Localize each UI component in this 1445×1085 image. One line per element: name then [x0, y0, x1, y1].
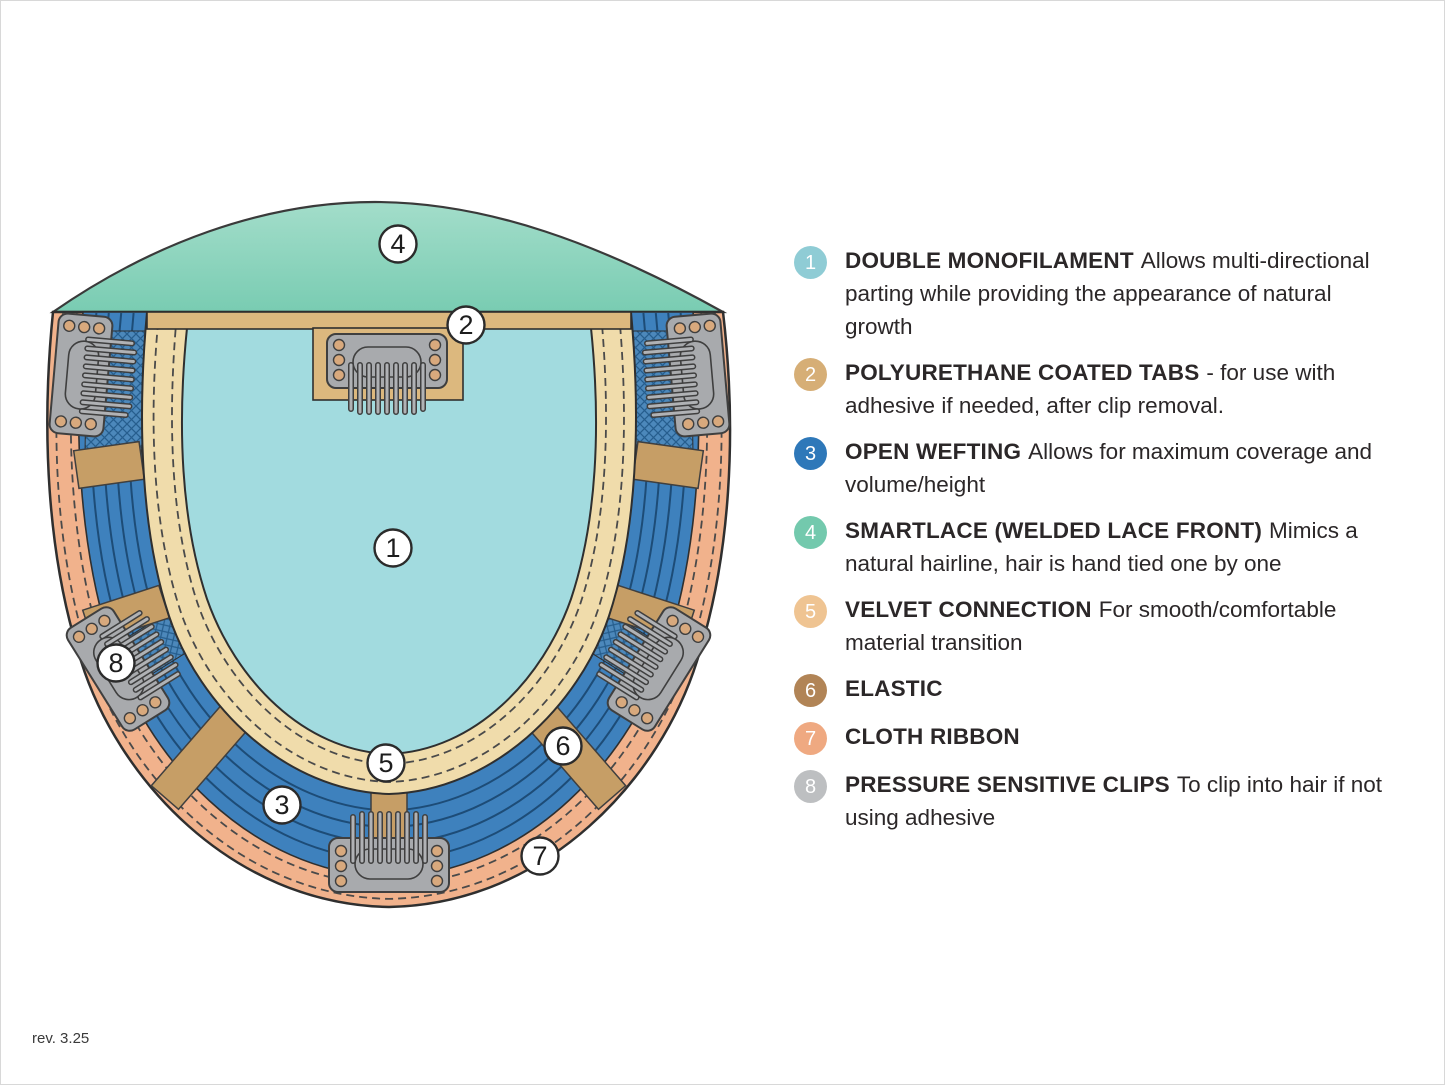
legend-number: 7 — [805, 729, 816, 749]
legend-number: 3 — [805, 444, 816, 464]
legend-term: ELASTIC — [845, 676, 943, 701]
legend-text: VELVET CONNECTIONFor smooth/comfortable … — [845, 593, 1390, 659]
callout-4: 4 — [380, 226, 417, 263]
legend-text: PRESSURE SENSITIVE CLIPSTo clip into hai… — [845, 768, 1390, 834]
legend-item-cloth-ribbon: 7 CLOTH RIBBON — [794, 720, 1394, 755]
callout-8: 8 — [98, 645, 135, 682]
legend-number: 2 — [805, 365, 816, 385]
legend-number-badge: 3 — [794, 437, 827, 470]
legend-text: SMARTLACE (WELDED LACE FRONT)Mimics a na… — [845, 514, 1390, 580]
callout-2: 2 — [448, 307, 485, 344]
legend-number-badge: 8 — [794, 770, 827, 803]
legend-number: 4 — [805, 523, 816, 543]
callout-5: 5 — [368, 745, 405, 782]
legend-item-polyurethane-tabs: 2 POLYURETHANE COATED TABS- for use with… — [794, 356, 1394, 422]
legend-item-smartlace: 4 SMARTLACE (WELDED LACE FRONT)Mimics a … — [794, 514, 1394, 580]
legend-text: OPEN WEFTINGAllows for maximum coverage … — [845, 435, 1390, 501]
tab-band-top — [147, 312, 631, 329]
legend-number: 8 — [805, 777, 816, 797]
legend-number: 5 — [805, 602, 816, 622]
callout-3-number: 3 — [274, 790, 289, 820]
legend-item-velvet-connection: 5 VELVET CONNECTIONFor smooth/comfortabl… — [794, 593, 1394, 659]
legend-item-pressure-clips: 8 PRESSURE SENSITIVE CLIPSTo clip into h… — [794, 768, 1394, 834]
callout-6-number: 6 — [555, 731, 570, 761]
legend-term: DOUBLE MONOFILAMENT — [845, 248, 1134, 273]
callout-1: 1 — [375, 530, 412, 567]
legend-term: VELVET CONNECTION — [845, 597, 1092, 622]
legend-term: PRESSURE SENSITIVE CLIPS — [845, 772, 1170, 797]
legend-number: 1 — [805, 253, 816, 273]
callout-4-number: 4 — [390, 229, 405, 259]
legend: 1 DOUBLE MONOFILAMENTAllows multi-direct… — [794, 244, 1394, 847]
legend-term: OPEN WEFTING — [845, 439, 1021, 464]
callout-5-number: 5 — [378, 748, 393, 778]
page: 1 2 3 4 5 6 7 8 — [0, 0, 1445, 1085]
legend-number-badge: 2 — [794, 358, 827, 391]
callout-1-number: 1 — [385, 533, 400, 563]
callout-3: 3 — [264, 787, 301, 824]
legend-text: DOUBLE MONOFILAMENTAllows multi-directio… — [845, 244, 1390, 343]
callout-7: 7 — [522, 838, 559, 875]
legend-number-badge: 5 — [794, 595, 827, 628]
legend-text: CLOTH RIBBON — [845, 720, 1027, 753]
legend-number-badge: 7 — [794, 722, 827, 755]
callout-6: 6 — [545, 728, 582, 765]
legend-item-elastic: 6 ELASTIC — [794, 672, 1394, 707]
legend-number-badge: 1 — [794, 246, 827, 279]
legend-text: ELASTIC — [845, 672, 950, 705]
callout-2-number: 2 — [458, 310, 473, 340]
legend-number-badge: 4 — [794, 516, 827, 549]
legend-term: CLOTH RIBBON — [845, 724, 1020, 749]
cap-construction-diagram: 1 2 3 4 5 6 7 8 — [1, 1, 761, 1085]
callout-7-number: 7 — [532, 841, 547, 871]
revision-label: rev. 3.25 — [32, 1030, 89, 1047]
legend-item-open-wefting: 3 OPEN WEFTINGAllows for maximum coverag… — [794, 435, 1394, 501]
elastic-block-top-right — [633, 442, 704, 489]
elastic-block-top-left — [74, 442, 145, 489]
legend-term: POLYURETHANE COATED TABS — [845, 360, 1199, 385]
legend-number: 6 — [805, 681, 816, 701]
legend-item-double-monofilament: 1 DOUBLE MONOFILAMENTAllows multi-direct… — [794, 244, 1394, 343]
legend-text: POLYURETHANE COATED TABS- for use with a… — [845, 356, 1390, 422]
legend-term: SMARTLACE (WELDED LACE FRONT) — [845, 518, 1262, 543]
legend-number-badge: 6 — [794, 674, 827, 707]
callout-8-number: 8 — [108, 648, 123, 678]
